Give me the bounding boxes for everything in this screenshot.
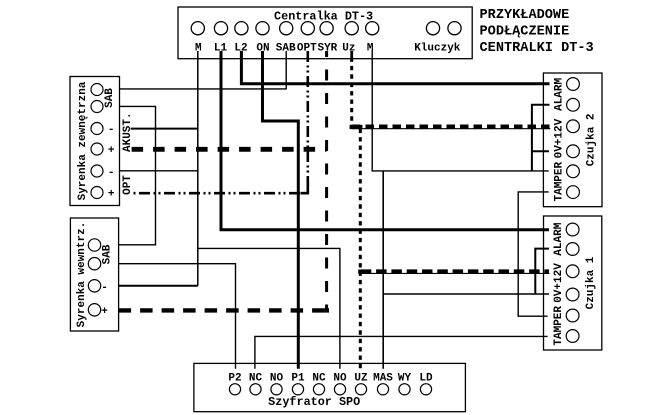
svg-text:SAB: SAB: [104, 88, 116, 108]
svg-text:PODŁĄCZENIE: PODŁĄCZENIE: [480, 25, 570, 40]
svg-text:TAMPER: TAMPER: [553, 306, 565, 346]
svg-text:NC: NC: [249, 372, 263, 384]
svg-text:SAB: SAB: [276, 43, 296, 55]
svg-text:UZ: UZ: [354, 372, 368, 384]
svg-text:Centralka DT-3: Centralka DT-3: [274, 10, 373, 24]
svg-text:M: M: [195, 43, 202, 55]
svg-text:CENTRALKI DT-3: CENTRALKI DT-3: [480, 41, 594, 56]
svg-text:0V+12V: 0V+12V: [553, 263, 565, 303]
svg-text:Szyfrator SPO: Szyfrator SPO: [268, 395, 360, 409]
svg-text:Uz: Uz: [342, 43, 355, 55]
svg-text:Czujka 2: Czujka 2: [586, 113, 598, 166]
svg-text:NO: NO: [270, 372, 284, 384]
svg-text:SYR: SYR: [317, 43, 337, 55]
svg-text:-: -: [101, 282, 108, 294]
svg-text:Czujka 1: Czujka 1: [585, 256, 597, 309]
svg-text:ALARM: ALARM: [553, 222, 565, 255]
svg-text:ON: ON: [256, 43, 269, 55]
svg-text:ALARM: ALARM: [553, 78, 565, 111]
svg-text:TAMPER: TAMPER: [553, 161, 565, 201]
svg-text:L2: L2: [234, 43, 247, 55]
svg-text:P2: P2: [228, 372, 241, 384]
svg-text:Kluczyk: Kluczyk: [414, 43, 461, 55]
svg-text:WY: WY: [398, 372, 412, 384]
svg-text:OPT: OPT: [122, 175, 134, 195]
svg-text:MAS: MAS: [373, 372, 393, 384]
svg-text:PRZYKŁADOWE: PRZYKŁADOWE: [480, 8, 570, 23]
svg-text:-: -: [108, 167, 115, 179]
svg-text:NC: NC: [312, 372, 326, 384]
svg-text:SAB: SAB: [101, 244, 113, 264]
svg-text:L1: L1: [214, 43, 228, 55]
svg-text:+: +: [108, 189, 115, 201]
svg-text:NO: NO: [333, 372, 347, 384]
svg-text:0V+12V: 0V+12V: [553, 118, 565, 158]
svg-text:Syrenka zewnętrzna: Syrenka zewnętrzna: [77, 81, 89, 200]
svg-text:Syrenka wewntrz.: Syrenka wewntrz.: [76, 222, 88, 328]
svg-text:AKUST.: AKUST.: [122, 112, 134, 152]
svg-text:OPT: OPT: [297, 43, 317, 55]
svg-text:-: -: [108, 124, 115, 136]
svg-text:+: +: [108, 145, 115, 157]
svg-text:P1: P1: [291, 372, 305, 384]
svg-text:M: M: [367, 43, 374, 55]
svg-text:LD: LD: [419, 372, 433, 384]
svg-text:+: +: [101, 306, 108, 318]
